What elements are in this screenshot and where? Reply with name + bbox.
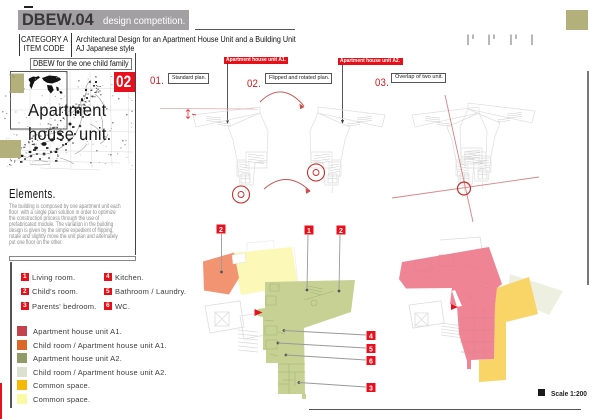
svg-text:1: 1 [307,228,311,235]
svg-text:3: 3 [369,386,373,393]
svg-text:2: 2 [339,228,343,235]
svg-text:2: 2 [219,227,223,234]
svg-text:6: 6 [369,359,373,366]
